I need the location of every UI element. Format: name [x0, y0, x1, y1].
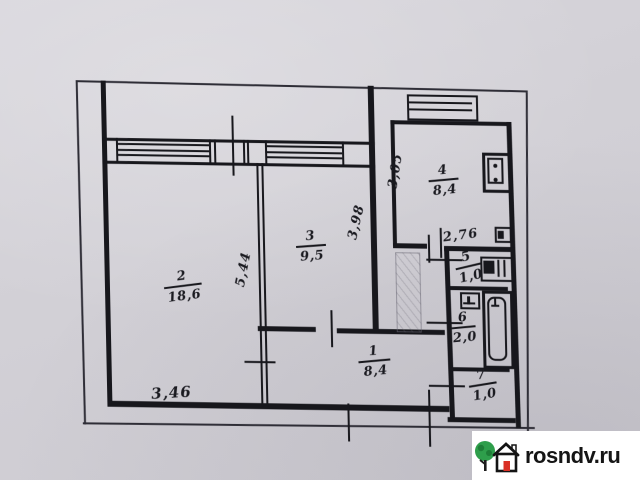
window-icon	[116, 143, 209, 146]
watermark-site-text: rosndv.ru	[525, 443, 620, 469]
dimension-label: 3,98	[345, 195, 369, 241]
room-area: 8,4	[426, 181, 464, 199]
sink-icon	[503, 260, 505, 277]
room-number: 3	[291, 228, 328, 246]
wall-segment	[368, 86, 379, 330]
room-area: 9,5	[293, 248, 330, 266]
wall-segment	[393, 243, 427, 249]
room-7-label: 7 1,0	[462, 365, 504, 405]
wall-pier	[243, 140, 246, 165]
window-icon	[265, 140, 268, 165]
window-icon	[265, 145, 342, 148]
wall-segment	[258, 326, 316, 332]
wall-pier	[214, 139, 217, 164]
room-4-label: 4 8,4	[424, 161, 464, 199]
toilet-icon	[463, 302, 475, 304]
room-2-label: 2 18,6	[158, 266, 207, 306]
photographed-floor-plan: 2 18,6 3 9,5 1 8,4 4 8,4 5 1,0 6 2,0	[0, 0, 640, 480]
dimension-tick	[244, 361, 275, 363]
room-1-label: 1 8,4	[354, 342, 394, 380]
watermark: rosndv.ru	[472, 431, 640, 480]
built-in-closet-icon	[395, 252, 422, 332]
wall-pier	[247, 140, 250, 165]
outer-border-right	[526, 92, 529, 432]
vent-box-icon	[498, 231, 504, 239]
room-area: 1,0	[466, 385, 504, 406]
window-icon	[342, 141, 345, 166]
dimension-label: 3,46	[150, 383, 192, 403]
sink-icon	[497, 260, 499, 277]
room-area: 2,0	[446, 329, 484, 347]
dimension-tick	[330, 310, 333, 347]
floor-plan-drawing: 2 18,6 3 9,5 1 8,4 4 8,4 5 1,0 6 2,0	[0, 0, 640, 480]
kitchen-stove-icon	[494, 178, 498, 182]
room-number: 6	[444, 309, 482, 327]
rosndv-logo-icon	[472, 438, 522, 474]
window-icon	[265, 156, 342, 159]
kitchen-stove-icon	[493, 164, 497, 168]
wall-segment	[102, 161, 375, 168]
wall-segment	[448, 417, 516, 423]
dimension-tick	[428, 390, 431, 447]
room-area: 8,4	[357, 362, 395, 380]
room-3-label: 3 9,5	[291, 228, 331, 266]
wall-segment	[101, 81, 113, 402]
window-icon	[265, 151, 342, 154]
dimension-label: 5,44	[233, 242, 256, 288]
dimension-tick	[429, 385, 465, 388]
dimension-label: 2,76	[442, 226, 480, 245]
bathtub-icon	[491, 305, 499, 307]
outer-border-bottom	[83, 422, 535, 429]
window-icon	[116, 154, 209, 157]
dimension-label: 3,05	[386, 144, 408, 190]
window-icon	[209, 139, 212, 164]
room-5-label: 5 1,0	[446, 246, 490, 288]
dimension-tick	[231, 116, 234, 176]
window-icon	[116, 138, 119, 163]
outer-border-top	[76, 80, 528, 92]
window-icon	[116, 149, 209, 152]
wall-segment	[337, 328, 445, 335]
room-area: 18,6	[162, 286, 208, 306]
room-6-label: 6 2,0	[444, 309, 484, 347]
outer-border-left	[76, 80, 86, 424]
